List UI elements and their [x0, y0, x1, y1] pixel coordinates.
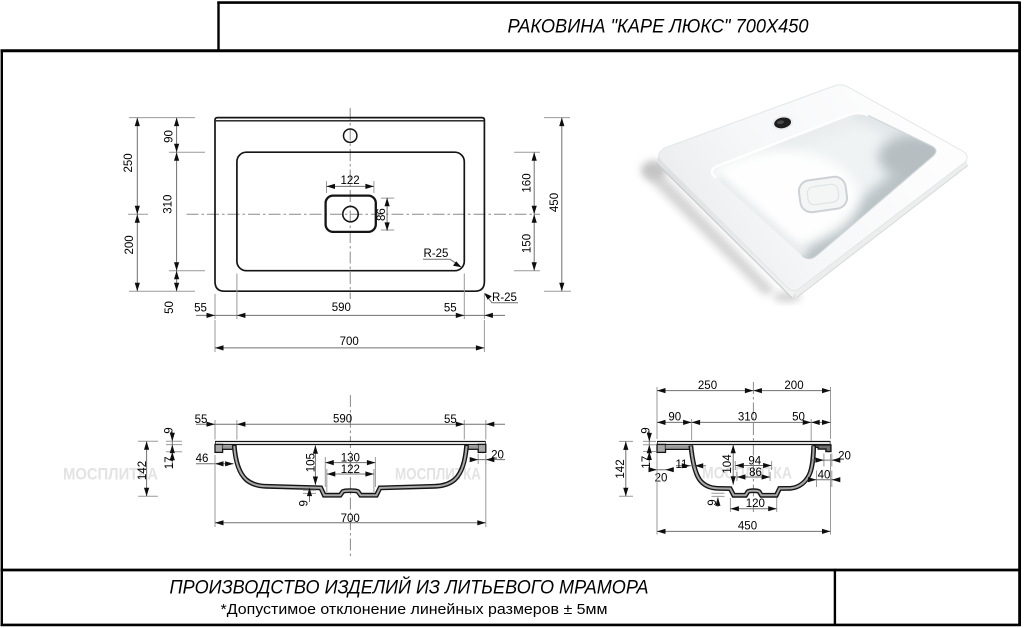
- svg-text:9: 9: [707, 499, 719, 505]
- svg-text:9: 9: [299, 500, 311, 506]
- svg-text:142: 142: [137, 461, 149, 480]
- svg-text:46: 46: [196, 453, 209, 465]
- svg-text:700: 700: [341, 513, 360, 525]
- svg-text:9: 9: [640, 427, 652, 433]
- svg-text:50: 50: [792, 411, 805, 423]
- svg-text:700: 700: [340, 336, 359, 348]
- svg-text:450: 450: [549, 193, 561, 212]
- svg-text:55: 55: [444, 302, 457, 314]
- svg-text:90: 90: [668, 412, 681, 424]
- svg-text:55: 55: [444, 414, 457, 426]
- svg-text:120: 120: [746, 498, 765, 510]
- svg-text:200: 200: [124, 235, 136, 254]
- svg-text:20: 20: [491, 449, 504, 461]
- svg-text:55: 55: [194, 302, 207, 314]
- svg-text:590: 590: [332, 302, 351, 314]
- svg-text:R-25: R-25: [424, 248, 449, 260]
- svg-text:104: 104: [722, 454, 734, 474]
- svg-text:17: 17: [164, 457, 176, 470]
- svg-text:130: 130: [341, 452, 360, 464]
- svg-text:122: 122: [341, 464, 360, 476]
- svg-text:МОСПЛИТКА: МОСПЛИТКА: [395, 465, 481, 484]
- svg-text:122: 122: [341, 175, 360, 187]
- svg-text:94: 94: [748, 455, 761, 467]
- svg-text:150: 150: [522, 234, 534, 253]
- svg-text:20: 20: [838, 450, 851, 462]
- svg-text:90: 90: [164, 130, 176, 143]
- svg-text:МОСПЛИТКА: МОСПЛИТКА: [702, 464, 792, 483]
- svg-text:9: 9: [164, 427, 176, 433]
- svg-text:450: 450: [738, 521, 757, 533]
- svg-text:142: 142: [615, 459, 627, 478]
- svg-text:ПРОИЗВОДСТВО ИЗДЕЛИЙ ИЗ ЛИТЬЕВ: ПРОИЗВОДСТВО ИЗДЕЛИЙ ИЗ ЛИТЬЕВОГО МРАМОР…: [170, 577, 649, 599]
- svg-text:250: 250: [698, 380, 717, 392]
- svg-text:310: 310: [163, 195, 175, 214]
- svg-text:250: 250: [123, 153, 135, 172]
- svg-text:17: 17: [641, 456, 653, 469]
- svg-text:50: 50: [164, 301, 176, 314]
- svg-text:160: 160: [522, 173, 534, 192]
- svg-text:11: 11: [676, 459, 688, 471]
- svg-text:86: 86: [376, 208, 388, 221]
- svg-text:55: 55: [195, 414, 208, 426]
- svg-text:86: 86: [749, 467, 762, 479]
- svg-text:*Допустимое отклонение линейны: *Допустимое отклонение линейных размеров…: [221, 602, 608, 618]
- svg-text:310: 310: [738, 412, 757, 424]
- svg-text:200: 200: [784, 380, 803, 392]
- svg-text:РАКОВИНА "КАРЕ ЛЮКС" 700Х450: РАКОВИНА "КАРЕ ЛЮКС" 700Х450: [508, 16, 809, 38]
- svg-text:105: 105: [306, 453, 318, 472]
- svg-text:590: 590: [333, 414, 352, 426]
- svg-text:40: 40: [818, 470, 831, 482]
